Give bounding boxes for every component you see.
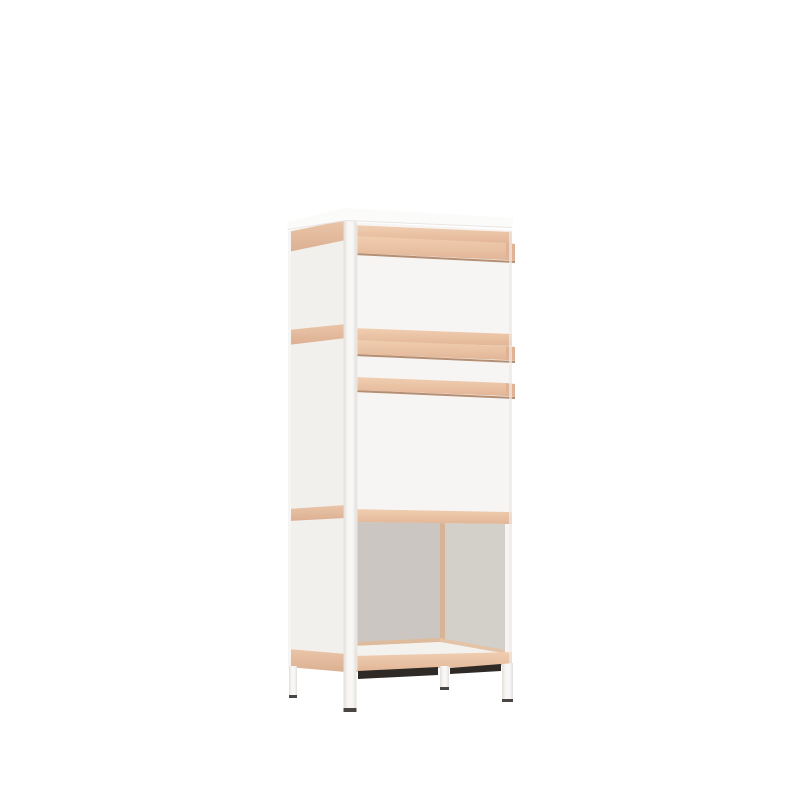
leg-front-right-tip bbox=[502, 699, 513, 702]
corner-post-front-left bbox=[344, 219, 357, 712]
cabinet-render bbox=[0, 0, 800, 800]
compartment-right-wall bbox=[445, 523, 505, 651]
leg-front-left-tip bbox=[344, 708, 357, 712]
side-back-edge bbox=[288, 231, 291, 668]
front-right-edge-shade bbox=[509, 231, 512, 664]
render-canvas bbox=[0, 0, 800, 800]
leg-back-left-tip bbox=[289, 695, 297, 698]
side-panel bbox=[288, 220, 346, 672]
leg-back-right bbox=[440, 666, 449, 690]
compartment-corner-strip bbox=[440, 523, 445, 640]
compartment-back-wall bbox=[352, 522, 440, 644]
leg-front-right bbox=[502, 663, 513, 702]
leg-back-right-tip bbox=[440, 687, 449, 690]
leg-back-left bbox=[289, 666, 297, 698]
